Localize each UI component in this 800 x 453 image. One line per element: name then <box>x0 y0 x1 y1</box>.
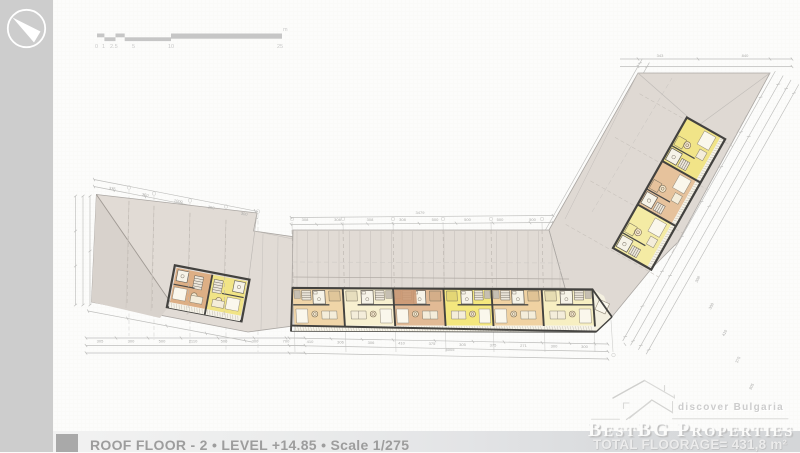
svg-text:5: 5 <box>132 44 135 50</box>
svg-text:300: 300 <box>128 339 135 344</box>
svg-text:305: 305 <box>459 342 466 347</box>
svg-text:305: 305 <box>97 339 104 344</box>
svg-text:500: 500 <box>464 217 471 222</box>
svg-text:300: 300 <box>252 339 259 344</box>
svg-text:500: 500 <box>497 217 504 222</box>
svg-text:410: 410 <box>398 341 405 346</box>
svg-text:300: 300 <box>581 344 588 349</box>
svg-text:410: 410 <box>721 328 729 337</box>
svg-text:410: 410 <box>307 339 314 344</box>
svg-text:3479: 3479 <box>416 210 426 215</box>
svg-text:300: 300 <box>551 343 558 348</box>
svg-text:305: 305 <box>748 382 756 391</box>
svg-text:306: 306 <box>368 340 375 345</box>
svg-text:840: 840 <box>742 53 749 58</box>
svg-text:700: 700 <box>283 339 290 344</box>
svg-text:308: 308 <box>399 217 406 222</box>
svg-text:2110: 2110 <box>189 339 198 344</box>
svg-text:4005: 4005 <box>446 347 456 352</box>
svg-text:343: 343 <box>657 53 664 58</box>
svg-text:500: 500 <box>221 339 228 344</box>
svg-text:308: 308 <box>334 217 341 222</box>
svg-text:500: 500 <box>432 217 439 222</box>
svg-text:375: 375 <box>429 341 436 346</box>
svg-text:308: 308 <box>367 217 374 222</box>
svg-text:308: 308 <box>694 274 702 283</box>
svg-text:308: 308 <box>302 217 309 222</box>
svg-text:0: 0 <box>95 44 98 50</box>
svg-text:m: m <box>283 27 288 33</box>
svg-text:308: 308 <box>707 301 715 310</box>
svg-text:306: 306 <box>337 340 344 345</box>
svg-text:271: 271 <box>520 343 527 348</box>
svg-text:500: 500 <box>159 339 166 344</box>
svg-text:375: 375 <box>734 355 742 364</box>
svg-text:500: 500 <box>529 217 536 222</box>
svg-text:25: 25 <box>277 44 283 50</box>
svg-text:2.5: 2.5 <box>110 44 118 50</box>
svg-text:1: 1 <box>102 44 105 50</box>
svg-text:375: 375 <box>490 342 497 347</box>
svg-text:10: 10 <box>168 44 174 50</box>
